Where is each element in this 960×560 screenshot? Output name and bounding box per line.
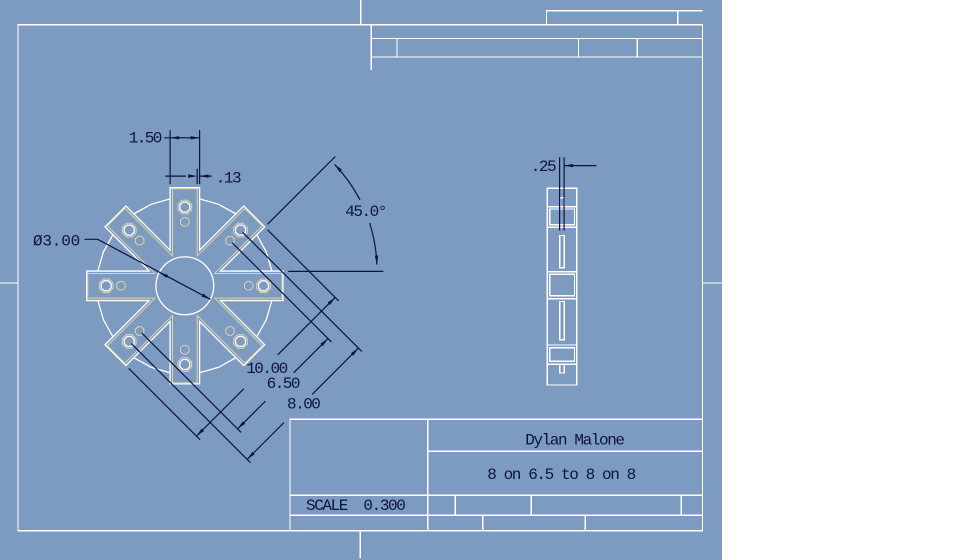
svg-text:45.0°: 45.0° (345, 203, 386, 221)
svg-text:SCALE 0.300: SCALE 0.300 (306, 497, 405, 515)
svg-text:8.00: 8.00 (287, 396, 320, 414)
svg-text:6.50: 6.50 (267, 375, 300, 393)
svg-text:.25: .25 (531, 158, 556, 176)
svg-text:Dylan Malone: Dylan Malone (525, 431, 624, 449)
svg-text:1.50: 1.50 (129, 129, 162, 147)
svg-text:8 on 6.5 to 8 on 8: 8 on 6.5 to 8 on 8 (487, 466, 635, 484)
svg-text:.13: .13 (216, 170, 241, 188)
svg-text:Ø3.00: Ø3.00 (33, 232, 80, 250)
